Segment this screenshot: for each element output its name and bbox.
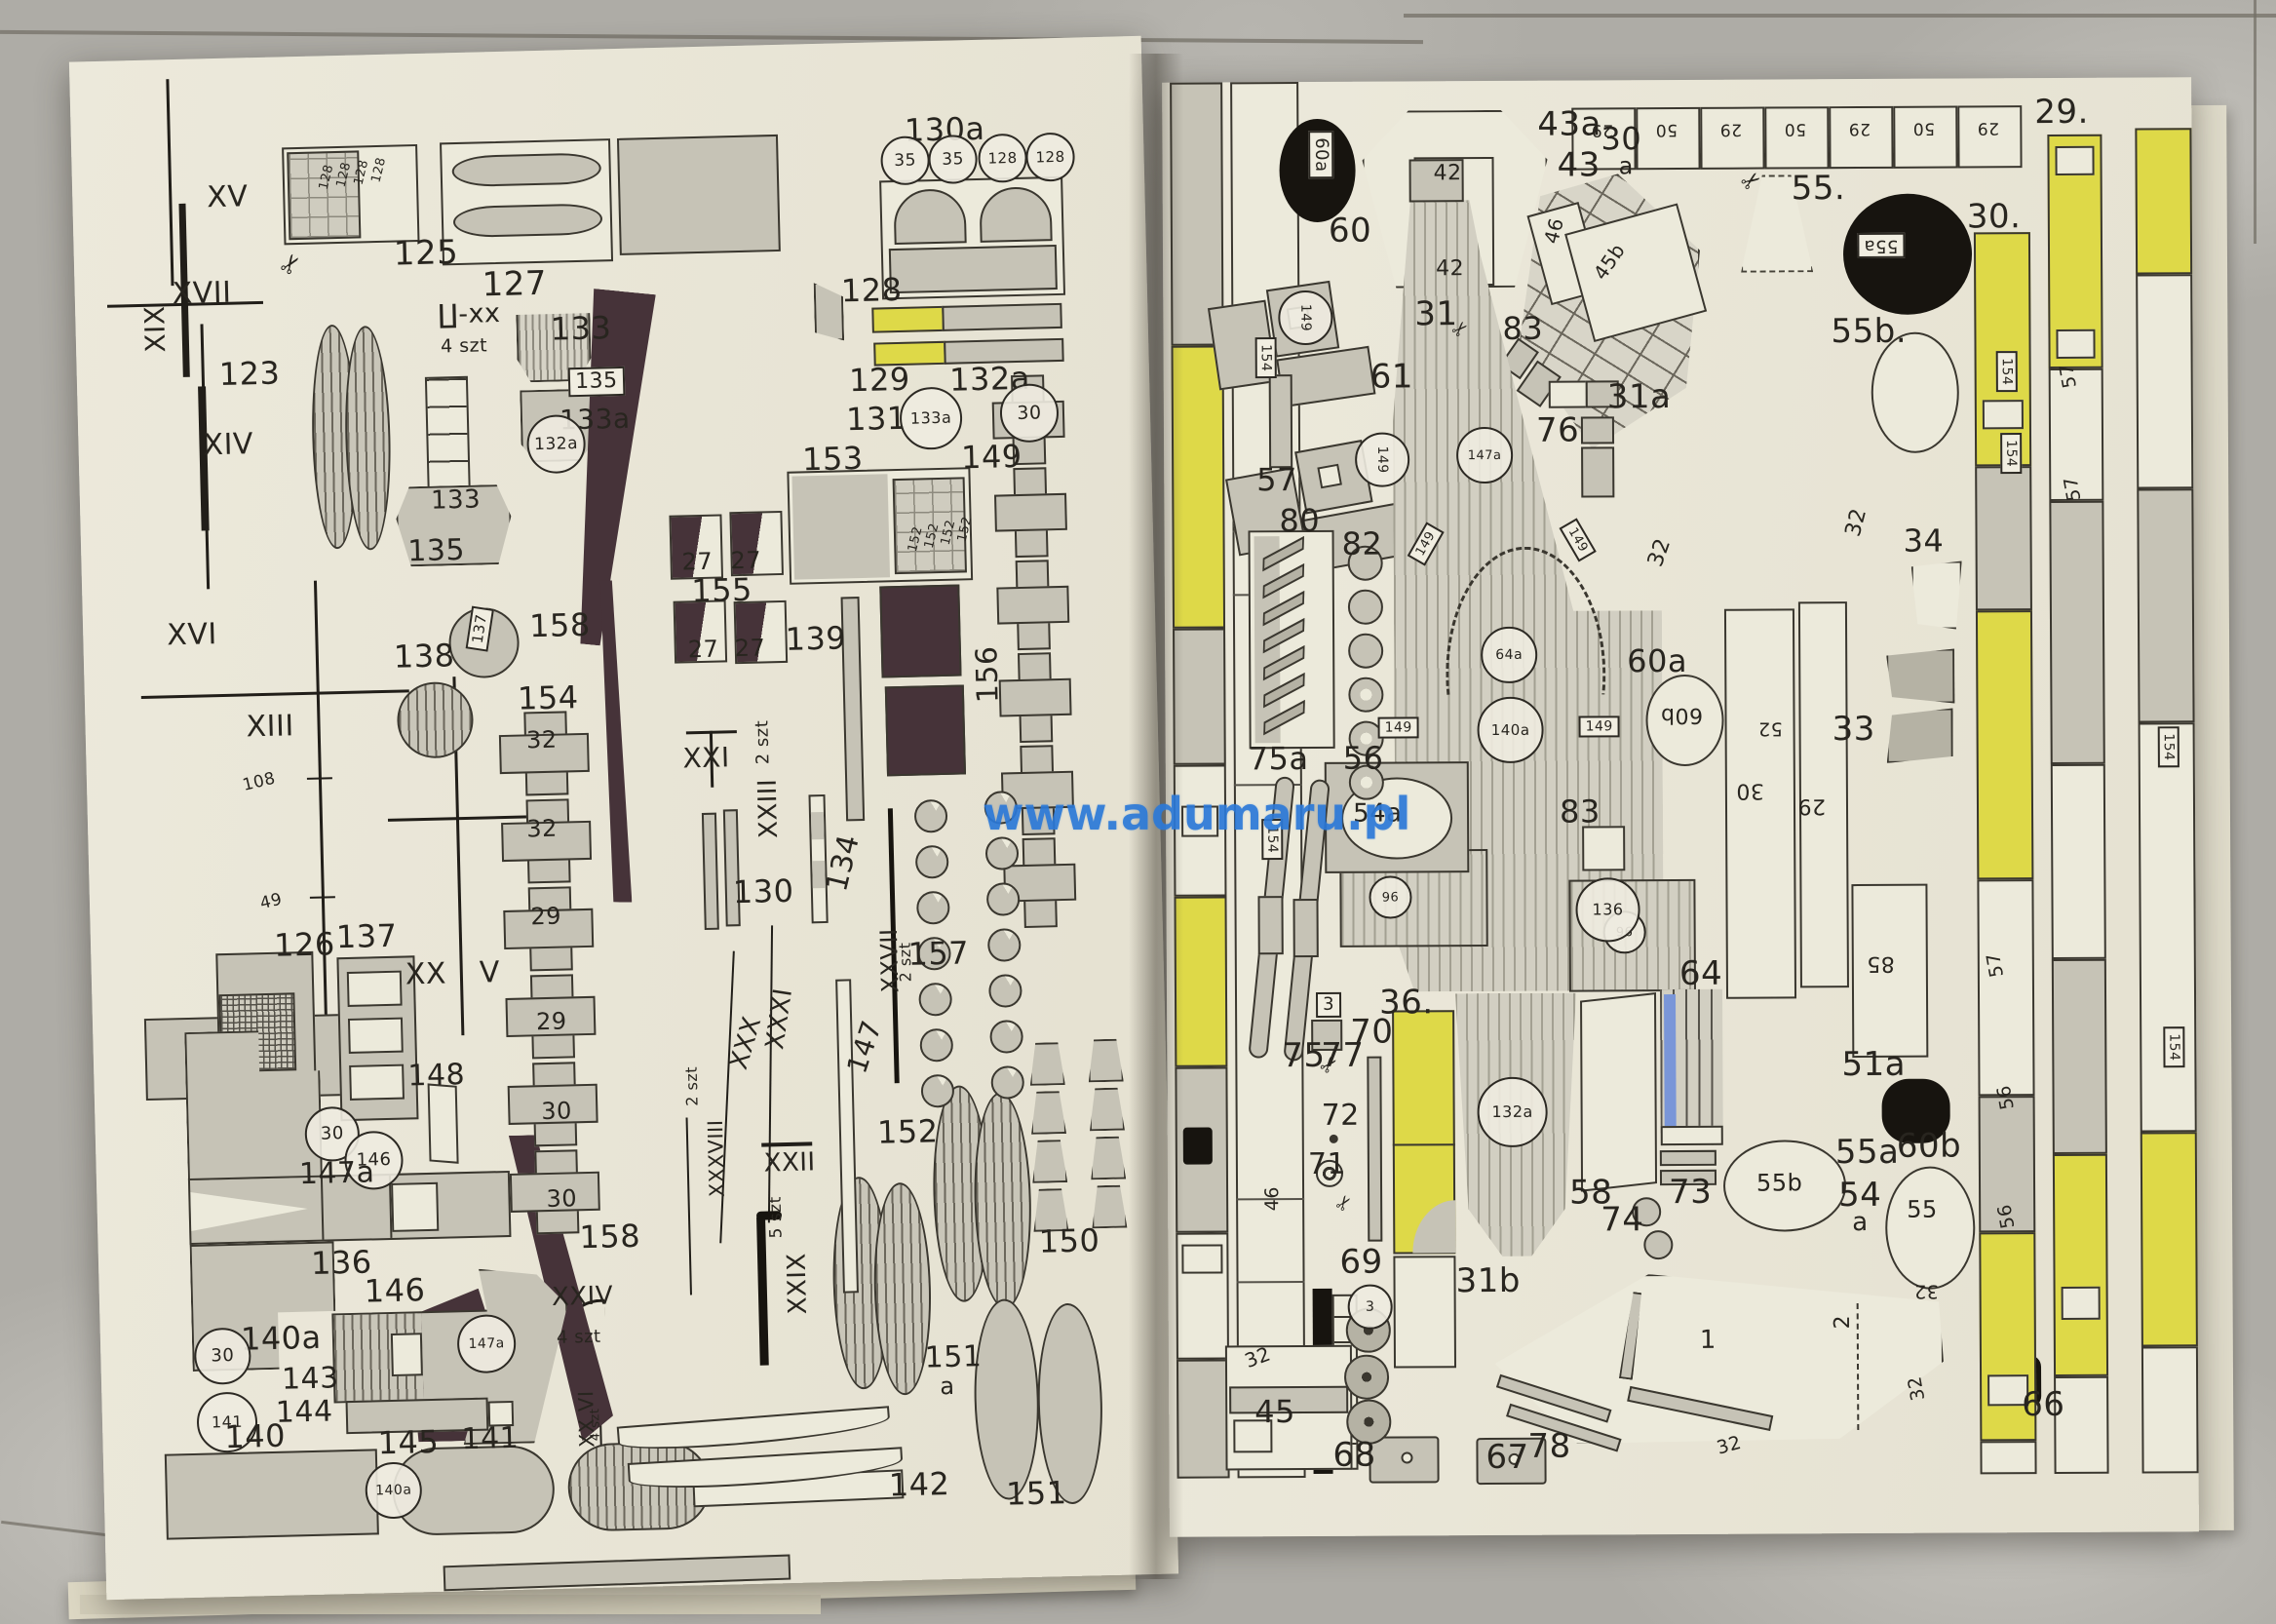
part-label: XXX [726,1014,766,1072]
part-label: 60b [1660,704,1703,725]
part-label: 4 szt [441,336,487,356]
part-shape [1549,380,1588,407]
part-shape [2141,1132,2198,1346]
part-shape [1977,879,2034,1096]
part-shape [702,813,719,930]
part-label: 131 [846,403,907,436]
part-label: XIX [141,305,170,353]
part-label: 149 [1278,290,1332,345]
part-label: 4 szt [557,1329,601,1347]
part-label: 140a [1477,697,1543,763]
part-label: XIV [203,430,253,460]
part-label: 4 szt [589,1408,602,1441]
part-label: XX [405,959,447,989]
part-label: 33 [1832,713,1874,746]
part-label: XXIX [785,1253,812,1315]
part-shape [349,1064,405,1101]
part-label: 136 [1575,877,1639,942]
part-shape [1886,709,1952,763]
part-shape [989,1020,1023,1054]
part-label: 69 [1339,1246,1382,1279]
part-label: 123 [218,357,280,390]
part-shape [1031,1140,1067,1183]
part-shape [999,678,1072,717]
part-label: 135 [568,367,625,397]
part-shape [2135,128,2192,274]
part-label: 30 [1736,780,1764,801]
tile-seam [0,30,1423,44]
part-label: 68 [1332,1439,1375,1472]
part-shape [391,1182,439,1232]
part-shape [918,983,952,1017]
part-label: 55b. [1831,315,1907,348]
part-label: 5 szt [768,1196,786,1239]
part-shape [919,1028,953,1063]
part-label: 108 [241,770,277,793]
part-label: 128 [978,134,1027,183]
part-shape [914,799,948,833]
part-label: 151 [924,1342,982,1373]
part-label: 140a [241,1322,322,1355]
part-label: 2 [1832,1315,1854,1330]
part-label: 32 [1715,1434,1743,1458]
part-label: 29 [1848,120,1871,136]
part-shape [889,245,1058,293]
part-label: 149 [1378,716,1419,738]
scissors-icon: ✂ [275,249,308,281]
part-label: 154 [1255,337,1277,378]
part-label: 30 [546,1186,577,1211]
part-label: 29 [536,1009,567,1033]
part-shape [1661,1126,1723,1145]
part-label: 83 [1502,313,1543,344]
part-label: 157 [907,937,969,970]
part-shape [1976,610,2033,879]
part-label: 133 [431,486,482,513]
part-shape [1393,1256,1456,1368]
part-label: 55a [1857,233,1906,258]
part-label: 96 [1369,875,1411,918]
tile-seam [1404,14,2276,18]
part-shape [1581,416,1614,444]
part-label: 50 [1912,120,1935,136]
part-shape [1348,677,1383,713]
part-label: 154 [518,681,579,715]
part-label: a [1618,154,1633,177]
part-shape [1089,1088,1125,1132]
part-shape [391,1333,423,1376]
part-label: 32 [1843,506,1871,539]
part-shape [1582,826,1625,870]
part-shape [811,812,825,839]
part-label: 61 [1370,360,1413,393]
part-shape [1237,1281,1305,1283]
part-shape [1660,1150,1717,1166]
part-label: 55b [1756,1171,1802,1194]
part-label: XVII [172,279,231,309]
part-label: 55 [1907,1198,1938,1221]
part-shape [879,585,961,678]
part-shape [347,971,403,1007]
part-shape [425,376,471,490]
part-shape [141,689,409,699]
part-shape [768,925,773,1222]
part-label: 133 [550,312,611,345]
watermark: www.adumaru.pl [983,788,1410,840]
tile-seam [2254,0,2257,244]
part-shape [761,1141,812,1146]
part-shape [166,79,174,286]
part-shape [1344,1355,1389,1400]
part-shape [310,896,335,899]
part-label: 147a [298,1158,374,1189]
part-shape [942,303,1062,331]
part-label: 2 szt [684,1066,701,1106]
part-label: 51a [1841,1048,1906,1081]
part-shape [348,1018,404,1054]
part-label: 56 [1995,1203,2018,1230]
part-label: 29 [1591,121,1613,137]
part-label: 67 [1485,1441,1528,1474]
part-label: 60a [1627,645,1687,677]
part-label: 45 [1254,1396,1295,1427]
part-shape [871,306,945,333]
part-label: XXIII [755,778,782,838]
part-label: 29 [530,905,561,929]
part-label: 42 [1436,258,1464,280]
part-shape [1980,1441,2036,1474]
part-label: 27 [681,550,713,574]
part-shape [1181,1244,1222,1273]
part-label: 80 [1279,505,1320,536]
part-label: 55a [1835,1136,1900,1169]
part-shape [915,845,949,879]
part-shape [916,891,950,925]
part-label: 145 [377,1426,439,1459]
part-label: XXII [763,1149,816,1176]
part-shape [2056,329,2095,359]
part-label: 158 [529,609,591,642]
part-label: 158 [579,1220,640,1254]
part-shape [1911,561,1962,629]
part-label: 150 [1038,1224,1099,1257]
part-label: 3 [1316,992,1341,1018]
part-label: 75a [1249,743,1309,774]
part-label: 64a [1481,627,1537,683]
photo-of-model-sheets: XVXVIIXIXXIVXVIXIII10849XXV1231251271281… [0,0,2276,1624]
part-label: 72 [1322,1102,1360,1131]
part-label: 153 [802,443,864,476]
part-shape [165,1449,379,1539]
part-label: 127 [482,267,547,302]
part-label: 29 [1797,794,1826,816]
part-label: 128 [840,274,902,307]
part-label: 149 [1559,518,1596,561]
part-shape [453,203,603,238]
part-shape [2062,1287,2101,1320]
part-label: XXXVIII [706,1119,728,1197]
part-label: 148 [407,1061,465,1091]
part-label: 29 [1719,121,1742,137]
part-shape [1643,1230,1673,1259]
part-label: 82 [1341,528,1382,560]
part-label: 30 [541,1099,572,1123]
part-label: 60 [1329,214,1371,248]
part-label: 30. [1967,200,2022,233]
part-label: 66 [2022,1388,2064,1421]
part-shape [996,586,1069,625]
part-shape [2137,488,2194,722]
part-label: 139 [785,622,846,655]
part-label: XXI [682,744,730,772]
part-shape [2053,1154,2108,1376]
part-label: 154 [2000,433,2022,474]
part-shape [756,1218,769,1366]
part-label: 32 [1914,1282,1939,1300]
part-label: 56 [1343,743,1384,774]
part-shape [814,282,844,341]
part-label: 64 [1679,957,1722,990]
part-label: 46 [1541,215,1566,246]
part-label: 149 [1355,432,1409,486]
part-label: 57 [1985,951,2007,979]
part-shape [1029,1042,1065,1086]
part-label: 55. [1792,172,1846,205]
part-shape [1580,992,1657,1192]
part-label: 135 [407,536,465,566]
part-label: 74 [1601,1203,1643,1236]
part-label: 132a [1477,1077,1547,1147]
part-label: 134 [823,831,865,894]
part-shape [1257,896,1283,954]
part-label: V [479,958,500,988]
part-shape [617,1406,891,1453]
part-label: XIII [246,712,294,742]
part-shape [1367,1057,1382,1242]
part-label: 46 [1263,1186,1282,1211]
part-label: 128 [1025,133,1075,182]
part-label: 29 [1977,119,1999,135]
part-shape [1330,1135,1338,1143]
part-shape [397,681,475,759]
part-label: XXIV [552,1283,614,1310]
part-label: 57 [2058,362,2080,389]
part-shape [314,581,328,1037]
part-shape [1088,1039,1124,1083]
part-shape [990,1065,1024,1100]
part-shape [1401,1451,1412,1463]
part-label: 126 [274,928,335,961]
part-shape [2055,146,2094,175]
part-label: 1 [1700,1328,1717,1353]
part-label: XV [207,182,249,213]
part-label: 32 [1645,536,1675,570]
part-label: 43 [1557,148,1600,181]
part-label: 27 [734,636,765,660]
part-label: 34 [1903,525,1944,557]
scissors-icon: ✂ [1331,1190,1357,1216]
part-label: a [940,1374,955,1398]
part-label: 154 [2163,1026,2184,1067]
part-shape [307,777,332,780]
part-label: 50 [1655,121,1678,137]
part-shape [2052,959,2107,1154]
part-label: 78 [1527,1430,1570,1463]
part-label: 73 [1669,1176,1712,1209]
part-shape [1974,232,2031,466]
part-label: 60b [1897,1129,1962,1162]
part-label: 31b [1455,1264,1521,1297]
part-shape [2049,501,2104,764]
part-shape [988,974,1022,1008]
part-shape [1177,1359,1230,1478]
part-label: 57 [2062,475,2084,502]
part-shape [1292,899,1318,957]
part-shape [2141,1346,2199,1473]
part-label: 137 [336,920,398,953]
part-shape [1348,634,1383,669]
part-label: 2 szt [753,719,772,764]
part-label: 31a [1607,380,1672,413]
part-shape [1581,446,1614,497]
part-label: 71 [1308,1150,1346,1179]
part-label: 125 [393,236,458,271]
part-shape [428,1083,459,1163]
part-label: 54 [1838,1179,1881,1212]
part-shape [2136,274,2193,488]
part-shape [1183,1128,1213,1165]
part-shape [1348,590,1383,625]
part-shape [451,152,601,187]
part-label: ∐-xx [438,300,501,329]
part-shape [1317,464,1342,489]
part-label: 156 [973,645,1003,703]
part-shape [2139,722,2197,1132]
part-shape [1724,608,1796,998]
part-label: 3 [1348,1285,1393,1330]
part-shape [686,1117,692,1295]
part-shape [1975,466,2032,610]
part-label: 146 [364,1274,425,1307]
part-label: 130 [733,875,794,909]
part-label: 27 [688,638,719,662]
part-label: 52 [1758,718,1783,737]
part-label: XVI [167,620,217,650]
part-label: a [1852,1210,1869,1235]
part-label: 85 [1867,952,1895,974]
part-label: 29. [2034,96,2089,129]
watermark-text: www.adumaru.pl [983,788,1410,840]
part-label: 133a [899,386,963,450]
part-shape [987,928,1022,962]
part-shape [1393,1143,1455,1145]
part-label: 76 [1536,414,1579,447]
part-label: 141 [461,1424,519,1454]
part-label: 32 [526,817,558,841]
part-shape [972,1298,1041,1501]
part-label: 138 [394,639,455,673]
part-shape [1664,994,1677,1131]
part-shape [719,951,735,1244]
part-shape [617,135,781,255]
part-label: 32 [1906,1374,1928,1402]
part-label: 32 [526,728,558,753]
part-shape [1886,649,1954,704]
part-label: 142 [888,1468,949,1501]
part-label: 60a [1308,131,1333,179]
part-label: 151 [1006,1477,1067,1510]
part-label: 42 [1434,163,1462,184]
part-label: 140 [224,1420,286,1453]
part-shape [1269,374,1293,468]
part-shape [1090,1137,1126,1180]
part-label: 30 [194,1328,251,1385]
part-shape [1030,1091,1066,1135]
part-shape [1983,400,2024,429]
part-label: 147a [1456,427,1513,483]
part-label: 35 [928,135,978,184]
part-shape [994,493,1067,532]
part-label: 143 [282,1364,339,1394]
part-shape [986,882,1021,916]
part-label: 27 [730,548,761,572]
part-label: 155 [691,574,752,607]
part-shape [885,684,966,776]
part-label: 56 [1995,1084,2018,1111]
part-label: 149 [1579,715,1620,737]
part-shape [791,474,890,579]
part-label: 154 [1996,351,2018,392]
part-label: 49 [258,891,284,912]
part-label: 129 [849,364,910,397]
part-label: XXXI [762,986,796,1051]
part-label: 132a [526,414,586,474]
part-label: 83 [1560,795,1601,827]
part-label: 57 [1256,464,1297,495]
part-shape [1885,1166,1976,1289]
part-label: 35 [880,135,930,185]
part-shape [2051,764,2106,959]
part-label: 154 [2158,726,2180,767]
part-label: 50 [1784,120,1806,136]
part-label: 149 [961,441,1022,474]
part-label: 152 [877,1115,939,1148]
